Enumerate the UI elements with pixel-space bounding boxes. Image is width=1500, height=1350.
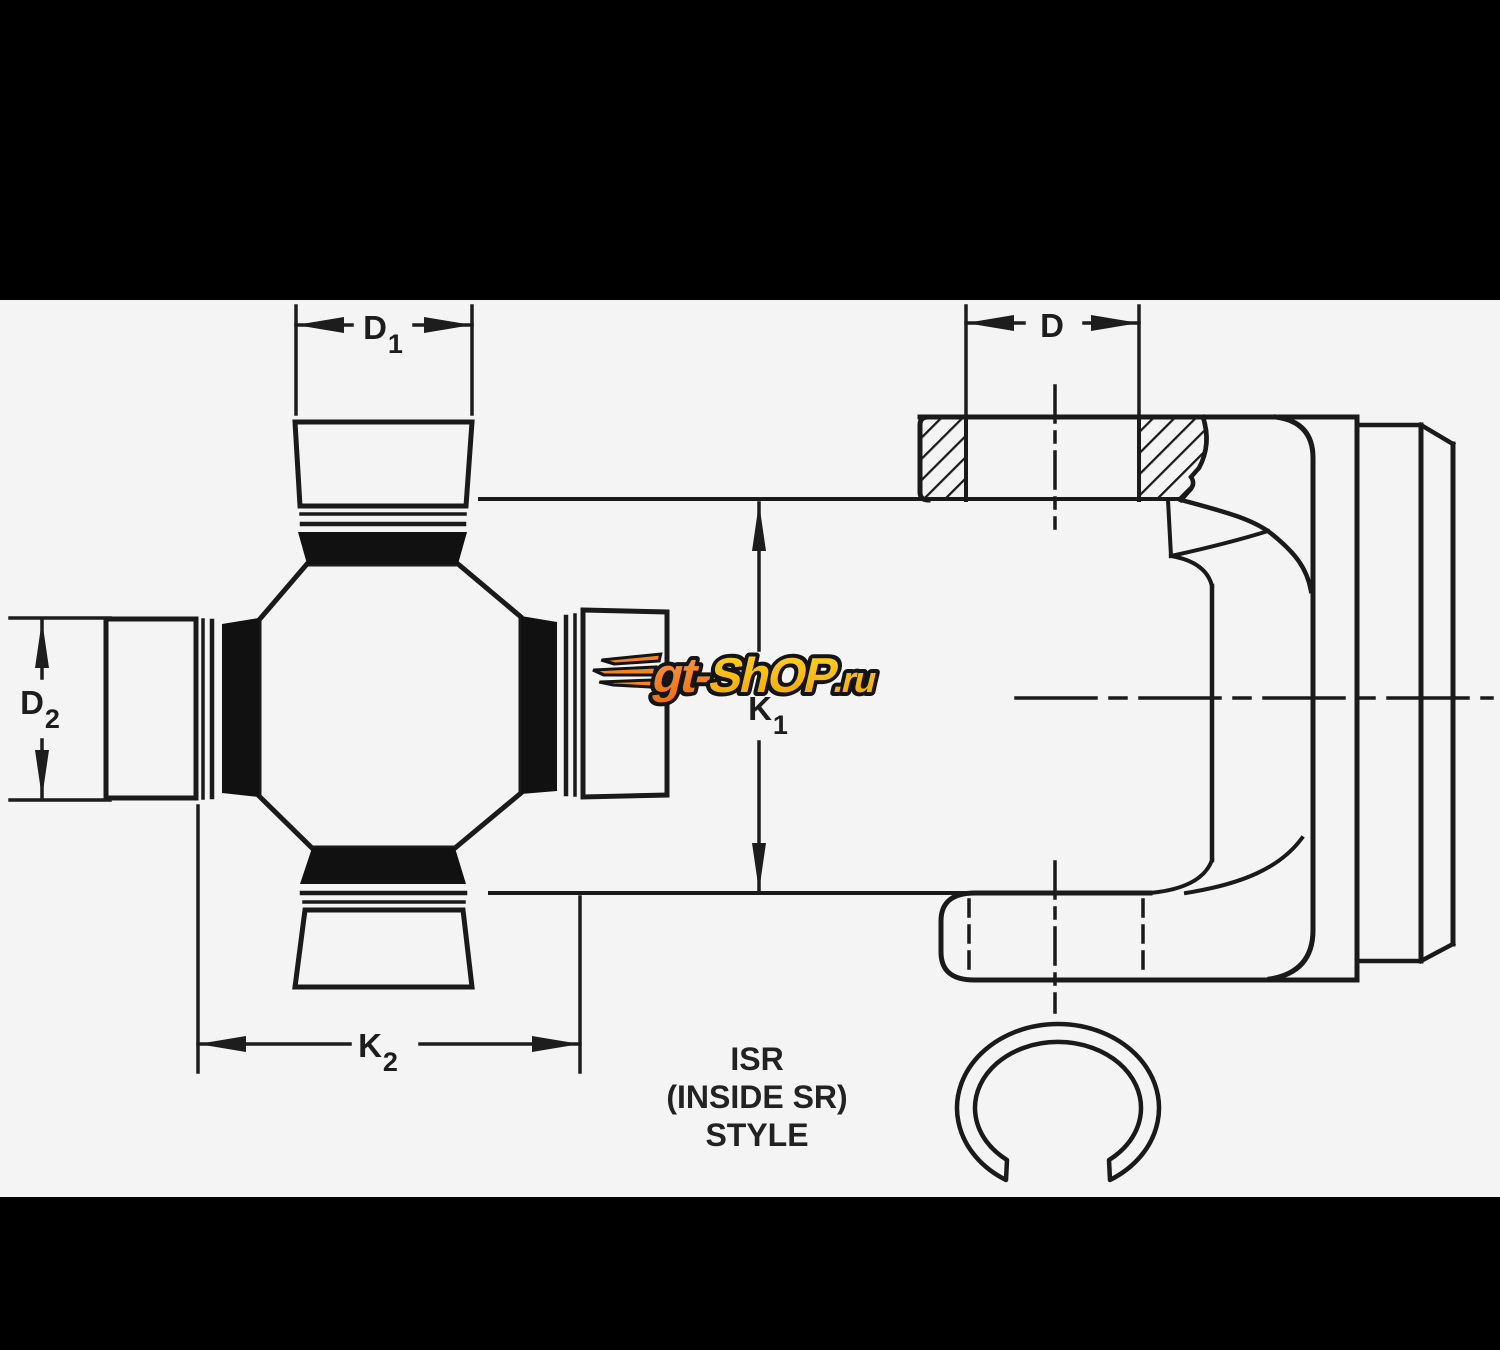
top-letterbox-bar <box>0 0 1500 300</box>
cross-body <box>259 564 521 848</box>
left-seal-band <box>222 618 259 797</box>
caption-line-2: (INSIDE SR) <box>666 1079 847 1115</box>
right-seal-band <box>521 616 557 794</box>
ujoint-diagram: D1 D D2 K1 <box>0 0 1500 1350</box>
caption-line-1: ISR <box>730 1041 783 1077</box>
speed-line <box>592 667 656 675</box>
bottom-seal-band <box>300 848 466 884</box>
left-bearing-cap <box>106 619 196 798</box>
caption-line-3: STYLE <box>705 1117 808 1153</box>
bottom-bearing-cap <box>295 910 472 987</box>
right-bearing-cap <box>583 610 667 797</box>
top-bearing-cap <box>295 422 472 506</box>
dim-d-label: D <box>1040 307 1064 344</box>
flange-hatch-left <box>921 418 966 499</box>
screenshot-root: D1 D D2 K1 <box>0 0 1500 1350</box>
bottom-letterbox-bar <box>0 1197 1500 1350</box>
top-seal-band <box>298 532 467 564</box>
